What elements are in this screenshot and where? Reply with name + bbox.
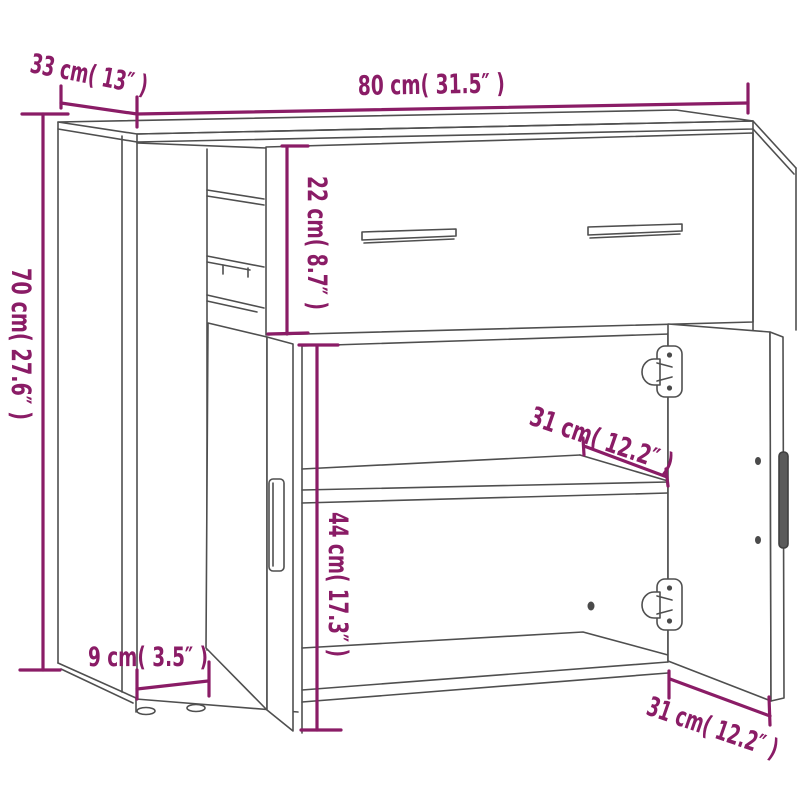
door-hinge-top (642, 346, 682, 397)
right-door-handle (779, 452, 788, 548)
door-screw-hole-bottom (755, 536, 761, 544)
cabinet-outline (58, 110, 796, 733)
dim-width-label: 80 cm( 31.5″ ) (358, 68, 506, 102)
shelf-pin-hole (588, 602, 595, 611)
dim-drawer-label: 22 cm( 8.7″ ) (301, 176, 332, 310)
interior-floor-edge (302, 632, 668, 655)
door-hinge-bottom (642, 579, 682, 630)
cabinet-feet (137, 705, 205, 715)
left-door-handle (269, 479, 284, 571)
dim-shelf-label: 31 cm( 12.2″ ) (526, 401, 678, 479)
plinth-rail-top (302, 662, 668, 690)
door-screw-hole-top (755, 457, 761, 465)
dim-depth-label: 33 cm( 13″ ) (28, 48, 151, 101)
shelf (302, 455, 668, 503)
dim-height-label: 70 cm( 27.6″ ) (5, 268, 36, 420)
cabinet-dimension-drawing: 80 cm( 31.5″ ) 33 cm( 13″ ) 70 cm( 27.6″… (0, 0, 800, 800)
dim-compartment-label: 44 cm( 17.3″ ) (322, 512, 353, 657)
opening-top-edge (302, 333, 700, 346)
plinth-rail-bottom (302, 673, 668, 702)
dim-door-width-label: 31 cm( 12.2″ ) (643, 691, 783, 765)
drawer (266, 133, 753, 335)
dim-plinth-label: 9 cm( 3.5″ ) (88, 642, 208, 673)
left-door (206, 323, 293, 731)
right-door (642, 324, 788, 701)
product-dimension-diagram: 80 cm( 31.5″ ) 33 cm( 13″ ) 70 cm( 27.6″… (0, 0, 800, 800)
left-side-panel (58, 129, 137, 712)
